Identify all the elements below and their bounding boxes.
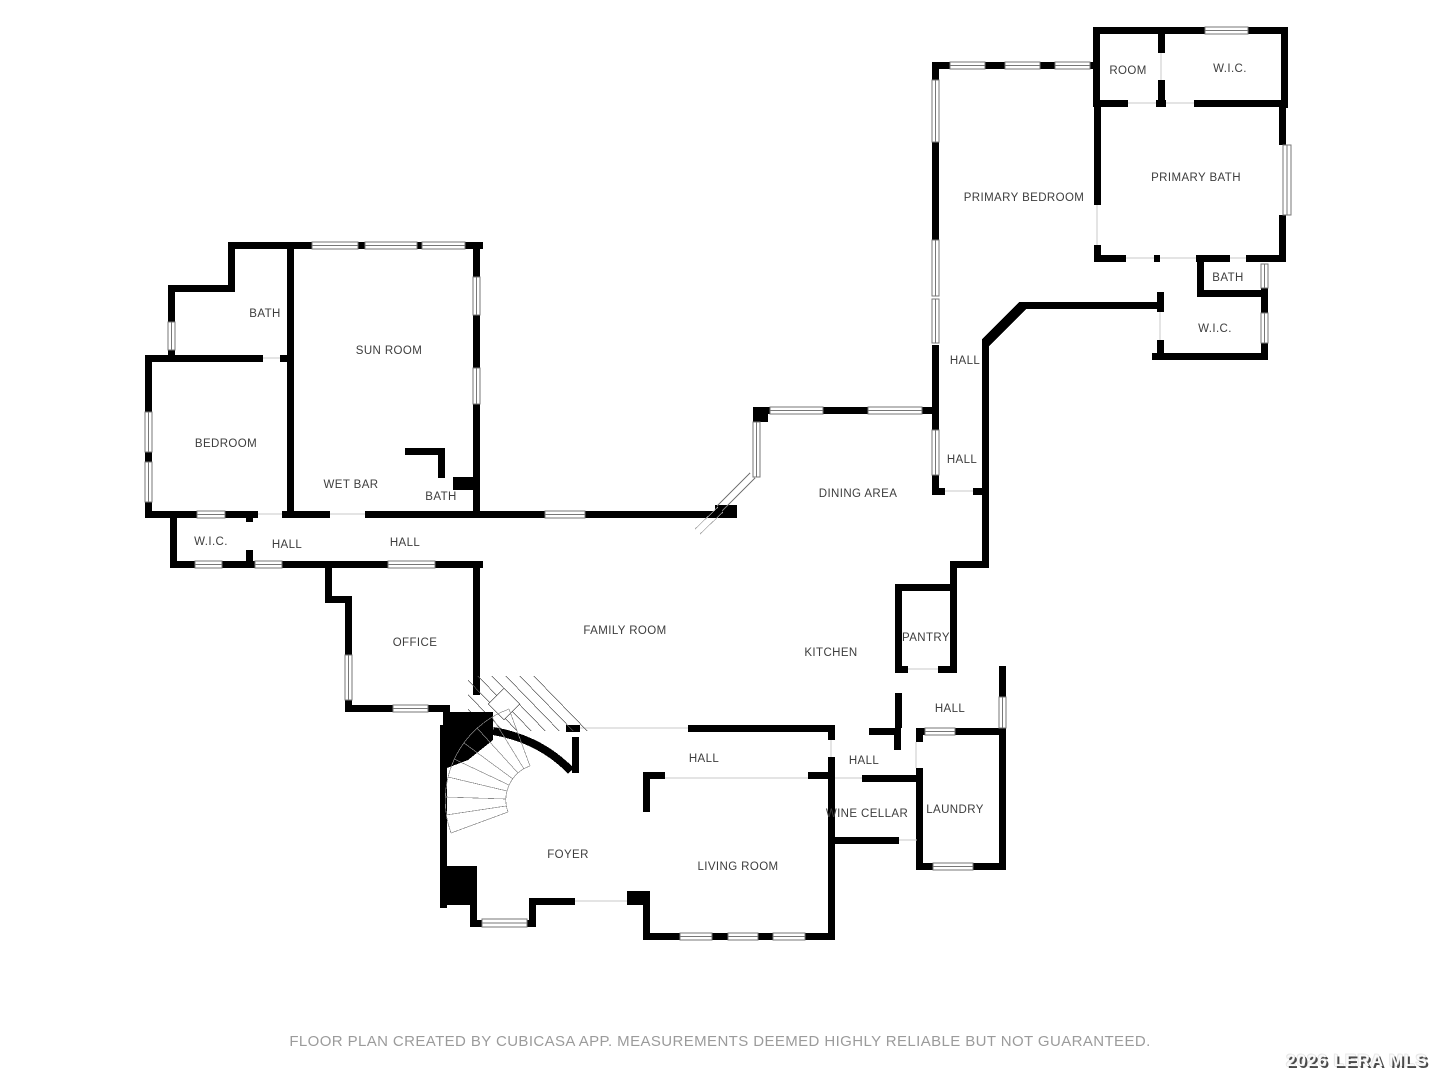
room-label-bath-right: BATH: [1212, 272, 1243, 284]
room-label-wic-left: W.I.C.: [194, 536, 228, 548]
room-label-pantry: PANTRY: [902, 632, 950, 644]
room-label-wic-top: W.I.C.: [1213, 63, 1247, 75]
room-label-family-room: FAMILY ROOM: [583, 625, 666, 637]
room-label-foyer: FOYER: [547, 849, 589, 861]
room-label-hall-left-small: HALL: [272, 539, 302, 551]
room-label-dining-area: DINING AREA: [819, 488, 898, 500]
room-label-hall-left-wide: HALL: [390, 537, 420, 549]
room-label-wet-bar: WET BAR: [324, 479, 379, 491]
room-label-living-room: LIVING ROOM: [697, 861, 778, 873]
room-label-office: OFFICE: [393, 637, 438, 649]
watermark-mls: 2026 LERA MLS: [1286, 1051, 1428, 1071]
staircase: [430, 670, 612, 833]
floor-plan: ROOM W.I.C. PRIMARY BEDROOM PRIMARY BATH…: [0, 0, 1440, 1080]
room-label-kitchen: KITCHEN: [804, 647, 857, 659]
room-label-hall-pantry: HALL: [935, 703, 965, 715]
room-label-hall-laundry: HALL: [849, 755, 879, 767]
walls: [145, 27, 1288, 940]
room-label-primary-bedroom: PRIMARY BEDROOM: [964, 192, 1085, 204]
footer-disclaimer: FLOOR PLAN CREATED BY CUBICASA APP. MEAS…: [0, 1033, 1440, 1050]
room-label-wic-right: W.I.C.: [1198, 323, 1232, 335]
room-label-wine-cellar: WINE CELLAR: [826, 808, 908, 820]
room-label-bath-wetbar: BATH: [425, 491, 456, 503]
room-label-sun-room: SUN ROOM: [356, 345, 422, 357]
room-label-laundry: LAUNDRY: [926, 804, 984, 816]
room-label-hall-center: HALL: [689, 753, 719, 765]
room-label-room: ROOM: [1109, 65, 1146, 77]
room-label-hall-upper: HALL: [950, 355, 980, 367]
room-label-primary-bath: PRIMARY BATH: [1151, 172, 1241, 184]
windows: [145, 27, 1291, 940]
room-label-bedroom: BEDROOM: [195, 438, 257, 450]
room-label-bath-left-top: BATH: [249, 308, 280, 320]
room-label-hall-small: HALL: [947, 454, 977, 466]
